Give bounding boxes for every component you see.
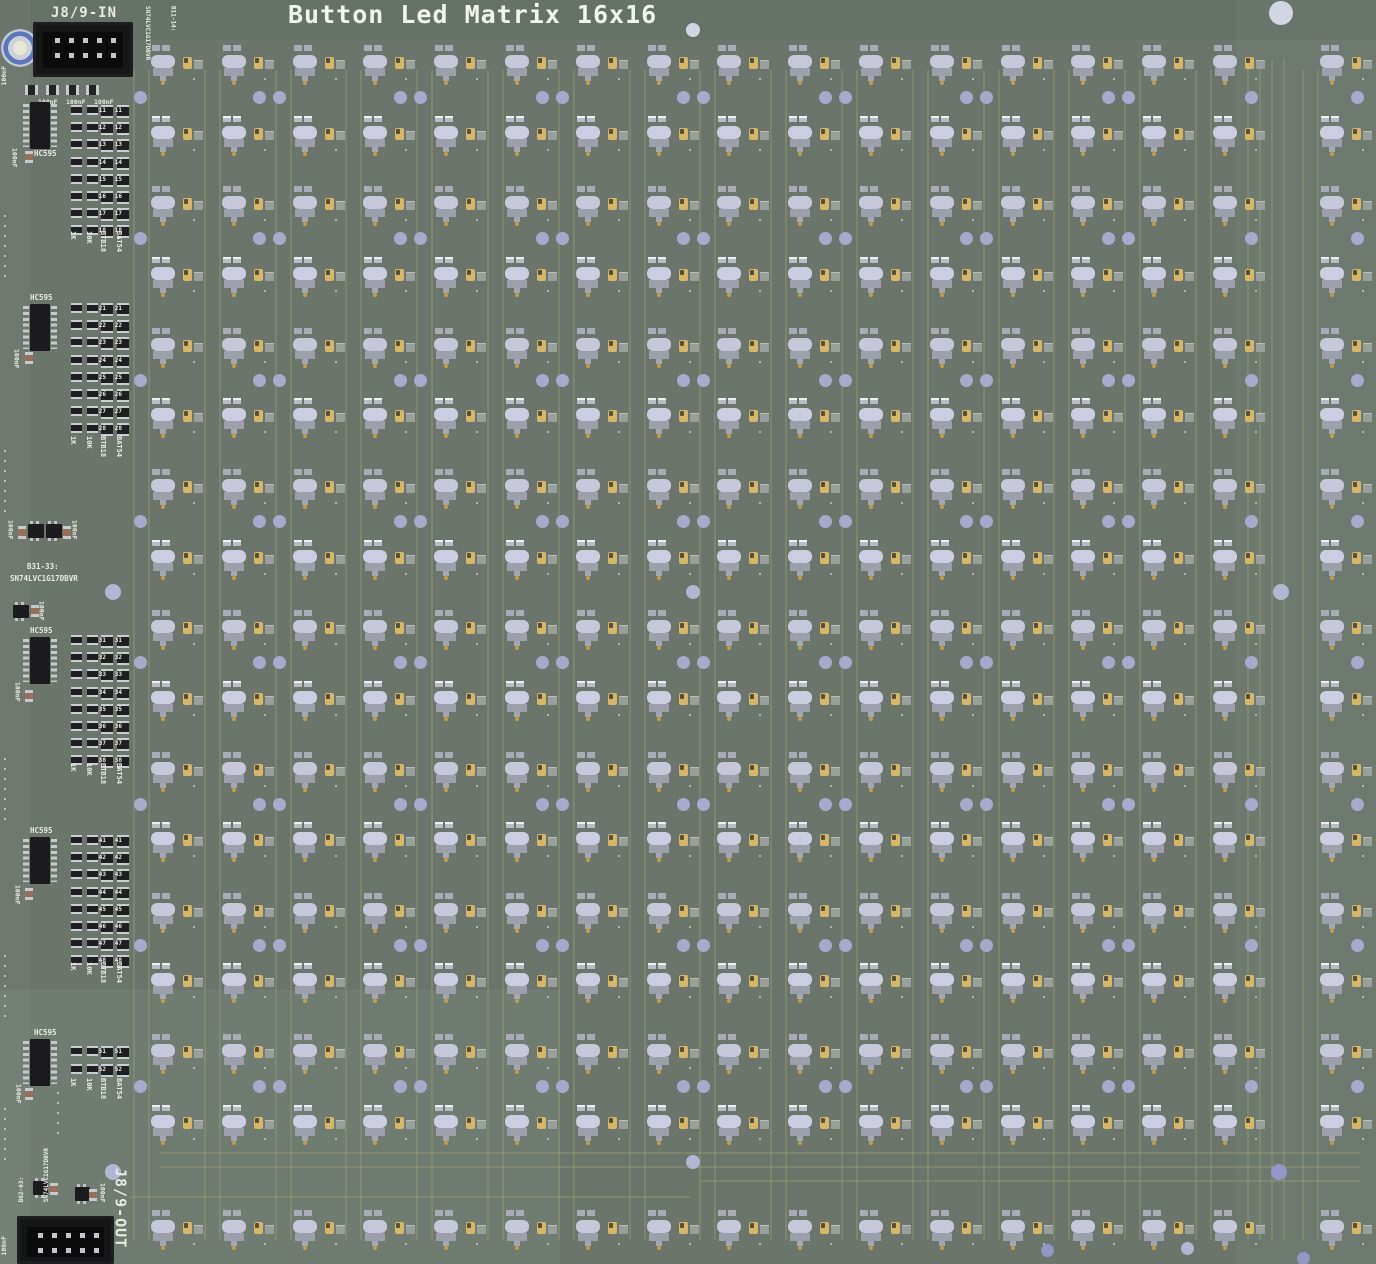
switch-pad-left (223, 963, 231, 969)
connector-pin (94, 1248, 99, 1253)
switch-base (436, 845, 456, 853)
switch-base (1322, 845, 1342, 853)
switch-body (930, 762, 954, 775)
gold-test-pad (869, 999, 873, 1003)
switch-pad-right (799, 893, 807, 899)
resistor (71, 372, 82, 382)
switch-pad-left (1072, 1105, 1080, 1111)
switch-pad-left (577, 45, 585, 51)
switch-pad-right (1153, 328, 1161, 334)
switch-base (790, 1233, 810, 1241)
led (1352, 128, 1361, 140)
gold-test-pad (1152, 434, 1156, 438)
switch-body (1213, 1220, 1237, 1233)
switch-pad-right (799, 1034, 807, 1040)
gold-test-pad (515, 152, 519, 156)
switch-pad-left (1072, 45, 1080, 51)
switch-pad-right (374, 752, 382, 758)
gold-test-pad (869, 858, 873, 862)
switch-pad-right (658, 610, 666, 616)
switch-base (295, 704, 315, 712)
diode (831, 272, 840, 281)
connector-pin (94, 1233, 99, 1238)
switch-pad-left (1321, 186, 1329, 192)
led (537, 905, 546, 917)
led (679, 128, 688, 140)
led (537, 269, 546, 281)
gold-test-pad (586, 152, 590, 156)
led (608, 834, 617, 846)
silk-speck (901, 219, 903, 221)
led (1245, 128, 1254, 140)
gold-test-pad (586, 1246, 590, 1250)
silk-speck (830, 502, 832, 504)
led (820, 1222, 829, 1234)
switch-base (649, 421, 669, 429)
silk-speck (1184, 855, 1186, 857)
gold-test-pad (1011, 576, 1015, 580)
switch-base (719, 775, 739, 783)
silk-speck (405, 149, 407, 151)
switch-body (930, 479, 954, 492)
silk-speck (547, 219, 549, 221)
gold-test-pad (373, 1141, 377, 1145)
switch-pad-right (1153, 1105, 1161, 1111)
switch-pad-right (445, 963, 453, 969)
shift-register-label: HC595 (34, 150, 57, 159)
switch-pad-right (1082, 1034, 1090, 1040)
switch-pad-left (1321, 540, 1329, 546)
switch-pad-right (1153, 822, 1161, 828)
diode (194, 767, 203, 776)
switch-body (647, 196, 671, 209)
switch-pad-right (1331, 610, 1339, 616)
diode (1044, 201, 1053, 210)
switch-pad-right (1331, 963, 1339, 969)
diode (194, 60, 203, 69)
resistor (71, 157, 82, 167)
gold-test-pad (586, 434, 590, 438)
switch-body (222, 973, 246, 986)
diode (336, 272, 345, 281)
switch-base (1322, 280, 1342, 288)
switch-body (505, 1115, 529, 1128)
switch-pad-right (233, 1034, 241, 1040)
switch-body (151, 620, 175, 633)
silk-speck (1043, 290, 1045, 292)
diode (336, 908, 345, 917)
diode (265, 413, 274, 422)
switch-body (788, 126, 812, 139)
led (962, 198, 971, 210)
switch-pad-right (1224, 45, 1232, 51)
switch-pad-right (516, 257, 524, 263)
gold-test-pad (798, 1246, 802, 1250)
switch-pad-left (577, 328, 585, 334)
switch-pad-right (162, 610, 170, 616)
button-post-hole (839, 939, 852, 952)
switch-body (1071, 1220, 1095, 1233)
silk-speck (405, 573, 407, 575)
switch-pad-left (1321, 469, 1329, 475)
switch-base (790, 775, 810, 783)
switch-pad-right (445, 257, 453, 263)
led (1103, 764, 1112, 776)
capacitor (25, 151, 33, 163)
switch-pad-left (1002, 540, 1010, 546)
note-ref: B11-14: (168, 6, 176, 60)
gold-test-pad (303, 1141, 307, 1145)
gold-test-pad (444, 576, 448, 580)
switch-body (1142, 550, 1166, 563)
switch-pad-right (233, 186, 241, 192)
diode (1044, 484, 1053, 493)
switch-body (434, 196, 458, 209)
led (962, 905, 971, 917)
gold-test-pad (1011, 81, 1015, 85)
silk-speck (1184, 502, 1186, 504)
led (395, 764, 404, 776)
switch-body (930, 1220, 954, 1233)
gold-test-pad (1152, 929, 1156, 933)
switch-pad-left (435, 398, 443, 404)
switch-body (859, 267, 883, 280)
switch-pad-right (233, 45, 241, 51)
switch-body (1213, 1115, 1237, 1128)
button-post-hole (819, 91, 832, 104)
switch-body (434, 479, 458, 492)
component-value-label: 10K (85, 231, 93, 244)
switch-pad-left (577, 1105, 585, 1111)
switch-pad-left (577, 1210, 585, 1216)
led (1174, 905, 1183, 917)
silk-speck (405, 361, 407, 363)
diode (690, 272, 699, 281)
switch-base (719, 280, 739, 288)
diode (477, 272, 486, 281)
led (608, 764, 617, 776)
switch-pad-right (941, 45, 949, 51)
resistor (71, 191, 82, 201)
silk-speck (901, 361, 903, 363)
button-post-hole (1122, 232, 1135, 245)
diode (1114, 484, 1123, 493)
button-post-hole (394, 939, 407, 952)
button-post-hole (980, 374, 993, 387)
switch-pad-right (304, 822, 312, 828)
silk-speck (335, 643, 337, 645)
led (325, 198, 334, 210)
switch-pad-left (1214, 681, 1222, 687)
switch-base (649, 704, 669, 712)
switch-body (293, 479, 317, 492)
component-value-label: 1K (69, 436, 77, 444)
switch-pad-right (728, 469, 736, 475)
switch-pad-right (1224, 116, 1232, 122)
button-post-hole (980, 91, 993, 104)
switch-base (153, 704, 173, 712)
switch-base (295, 1057, 315, 1065)
switch-pad-left (860, 45, 868, 51)
silk-speck (1184, 1067, 1186, 1069)
row-designator: 41 (92, 838, 106, 845)
gold-test-pad (1081, 646, 1085, 650)
silk-speck (830, 219, 832, 221)
led (891, 975, 900, 987)
component-value-label: BTB18 (99, 962, 107, 983)
gold-test-pad (303, 858, 307, 862)
resistor (71, 938, 82, 948)
switch-body (788, 762, 812, 775)
switch-body (505, 1044, 529, 1057)
switch-pad-right (304, 257, 312, 263)
diode (1256, 978, 1265, 987)
switch-body (1213, 479, 1237, 492)
switch-base (1073, 209, 1093, 217)
switch-body (647, 408, 671, 421)
led (608, 552, 617, 564)
switch-pad-left (364, 540, 372, 546)
diode (902, 343, 911, 352)
switch-pad-right (233, 963, 241, 969)
switch-pad-right (162, 469, 170, 475)
gold-test-pad (1152, 364, 1156, 368)
switch-body (434, 903, 458, 916)
switch-pad-right (162, 822, 170, 828)
switch-pad-left (223, 186, 231, 192)
switch-pad-left (718, 1210, 726, 1216)
led (325, 481, 334, 493)
switch-body (222, 691, 246, 704)
led (1103, 269, 1112, 281)
gold-test-pad (869, 81, 873, 85)
switch-pad-left (648, 398, 656, 404)
gold-test-pad (1081, 788, 1085, 792)
gold-test-pad (1081, 364, 1085, 368)
switch-base (932, 845, 952, 853)
switch-base (861, 139, 881, 147)
switch-pad-right (374, 328, 382, 334)
led (820, 198, 829, 210)
led (749, 1222, 758, 1234)
switch-pad-left (789, 540, 797, 546)
switch-body (1071, 973, 1095, 986)
switch-pad-left (718, 398, 726, 404)
switch-pad-left (435, 1034, 443, 1040)
button-post-hole (414, 232, 427, 245)
gold-test-pad (1223, 788, 1227, 792)
silk-speck (264, 714, 266, 716)
switch-pad-right (658, 45, 666, 51)
gold-test-pad (161, 646, 165, 650)
silk-speck (193, 785, 195, 787)
led (679, 834, 688, 846)
switch-body (1142, 408, 1166, 421)
silk-speck (618, 855, 620, 857)
switch-pad-left (364, 257, 372, 263)
switch-base (436, 492, 456, 500)
gold-test-pad (798, 858, 802, 862)
led (749, 57, 758, 69)
switch-pad-left (435, 469, 443, 475)
diode (1256, 1225, 1265, 1234)
switch-pad-left (1002, 752, 1010, 758)
component-value-label: 10K (85, 763, 93, 776)
led (183, 693, 192, 705)
silk-speck (689, 643, 691, 645)
switch-pad-left (1143, 610, 1151, 616)
silk-speck (1043, 1138, 1045, 1140)
switch-pad-left (1002, 822, 1010, 828)
switch-body (363, 1115, 387, 1128)
led (1103, 198, 1112, 210)
led (1245, 905, 1254, 917)
led (466, 340, 475, 352)
switch-pad-left (223, 328, 231, 334)
switch-pad-right (162, 1210, 170, 1216)
switch-body (434, 691, 458, 704)
silk-speck (618, 714, 620, 716)
led (325, 57, 334, 69)
switch-pad-right (1331, 469, 1339, 475)
gold-test-pad (444, 222, 448, 226)
switch-pad-left (1072, 893, 1080, 899)
switch-base (1144, 633, 1164, 641)
switch-pad-left (435, 186, 443, 192)
button-post-hole (556, 91, 569, 104)
diode (406, 343, 415, 352)
switch-pad-left (860, 328, 868, 334)
row-designator: 12 (108, 125, 122, 132)
diode (194, 201, 203, 210)
switch-pad-right (516, 45, 524, 51)
silk-speck (1113, 361, 1115, 363)
capacitor (25, 888, 33, 900)
gold-test-pad (1081, 152, 1085, 156)
switch-body (1142, 126, 1166, 139)
button-post-hole (839, 798, 852, 811)
silk-speck (476, 431, 478, 433)
switch-base (1073, 845, 1093, 853)
switch-body (930, 973, 954, 986)
switch-pad-left (718, 822, 726, 828)
diode (406, 1049, 415, 1058)
led (395, 340, 404, 352)
switch-base (649, 492, 669, 500)
switch-body (647, 1220, 671, 1233)
button-post-hole (394, 798, 407, 811)
row-designator: 28 (92, 426, 106, 433)
gold-test-pad (161, 929, 165, 933)
led (891, 1117, 900, 1129)
switch-body (434, 55, 458, 68)
shift-register-ic (30, 1039, 50, 1086)
button-post-hole (960, 515, 973, 528)
led (1245, 198, 1254, 210)
diode (1044, 625, 1053, 634)
switch-pad-left (506, 681, 514, 687)
trace-vertical (644, 70, 646, 1240)
led (254, 128, 263, 140)
led (820, 622, 829, 634)
switch-base (861, 1057, 881, 1065)
led (679, 693, 688, 705)
switch-pad-left (364, 752, 372, 758)
switch-body (1320, 479, 1344, 492)
switch-base (1215, 563, 1235, 571)
switch-base (295, 68, 315, 76)
switch-pad-left (648, 257, 656, 263)
button-post-hole (677, 1080, 690, 1093)
led (325, 1046, 334, 1058)
gold-test-pad (373, 788, 377, 792)
silk-speck (618, 361, 620, 363)
button-post-hole (556, 232, 569, 245)
switch-base (1073, 68, 1093, 76)
silk-speck (759, 361, 761, 363)
resistor (71, 122, 82, 132)
led (962, 410, 971, 422)
switch-pad-left (506, 963, 514, 969)
switch-body (1071, 55, 1095, 68)
gold-test-pad (657, 788, 661, 792)
switch-base (153, 280, 173, 288)
gold-test-pad (1011, 293, 1015, 297)
diode (1114, 696, 1123, 705)
led (608, 1117, 617, 1129)
switch-pad-right (1082, 540, 1090, 546)
switch-base (295, 1233, 315, 1241)
button-post-hole (536, 798, 549, 811)
gold-test-pad (1152, 81, 1156, 85)
button-post-hole (414, 515, 427, 528)
switch-body (859, 126, 883, 139)
switch-base (1322, 421, 1342, 429)
led (820, 1046, 829, 1058)
diode (1256, 696, 1265, 705)
led (1352, 410, 1361, 422)
led (608, 269, 617, 281)
silk-dots (4, 758, 6, 820)
led (325, 410, 334, 422)
switch-body (151, 973, 175, 986)
silk-speck (618, 785, 620, 787)
switch-base (719, 421, 739, 429)
gold-test-pad (940, 222, 944, 226)
switch-pad-left (1002, 398, 1010, 404)
silk-speck (1184, 926, 1186, 928)
connector-pin (69, 53, 74, 58)
gold-test-pad (727, 222, 731, 226)
capacitor-label: 100nF (14, 1084, 21, 1104)
switch-body (434, 1115, 458, 1128)
silk-speck (1113, 573, 1115, 575)
gold-test-pad (1081, 81, 1085, 85)
capacitor (63, 526, 71, 539)
switch-pad-left (931, 116, 939, 122)
diode (1256, 60, 1265, 69)
switch-pad-left (1072, 469, 1080, 475)
diode (336, 60, 345, 69)
switch-pad-left (152, 257, 160, 263)
mounting-hole (1041, 1244, 1054, 1257)
switch-base (649, 139, 669, 147)
led (1352, 340, 1361, 352)
button-post-hole (697, 374, 710, 387)
silk-speck (547, 996, 549, 998)
switch-pad-left (648, 328, 656, 334)
trace-vertical (983, 70, 985, 1240)
